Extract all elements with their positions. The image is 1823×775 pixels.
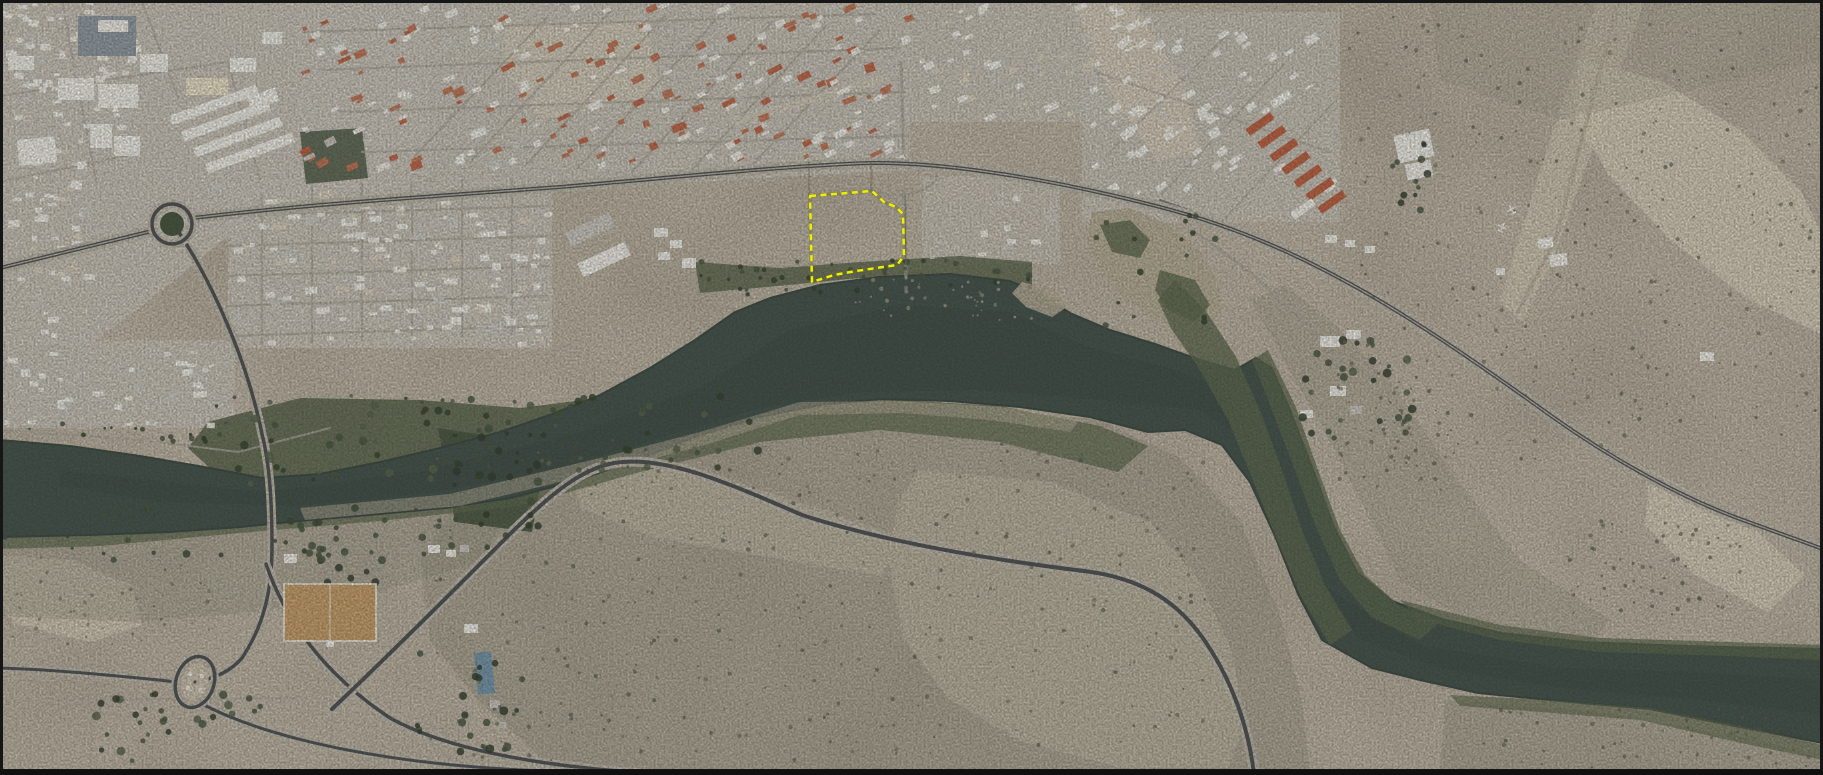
satellite-image[interactable] — [0, 0, 1823, 775]
map-viewport[interactable] — [0, 0, 1823, 775]
scene-root — [0, 0, 1823, 775]
frame-bottom-bar — [0, 770, 1823, 775]
fine-speckle — [0, 0, 1823, 775]
